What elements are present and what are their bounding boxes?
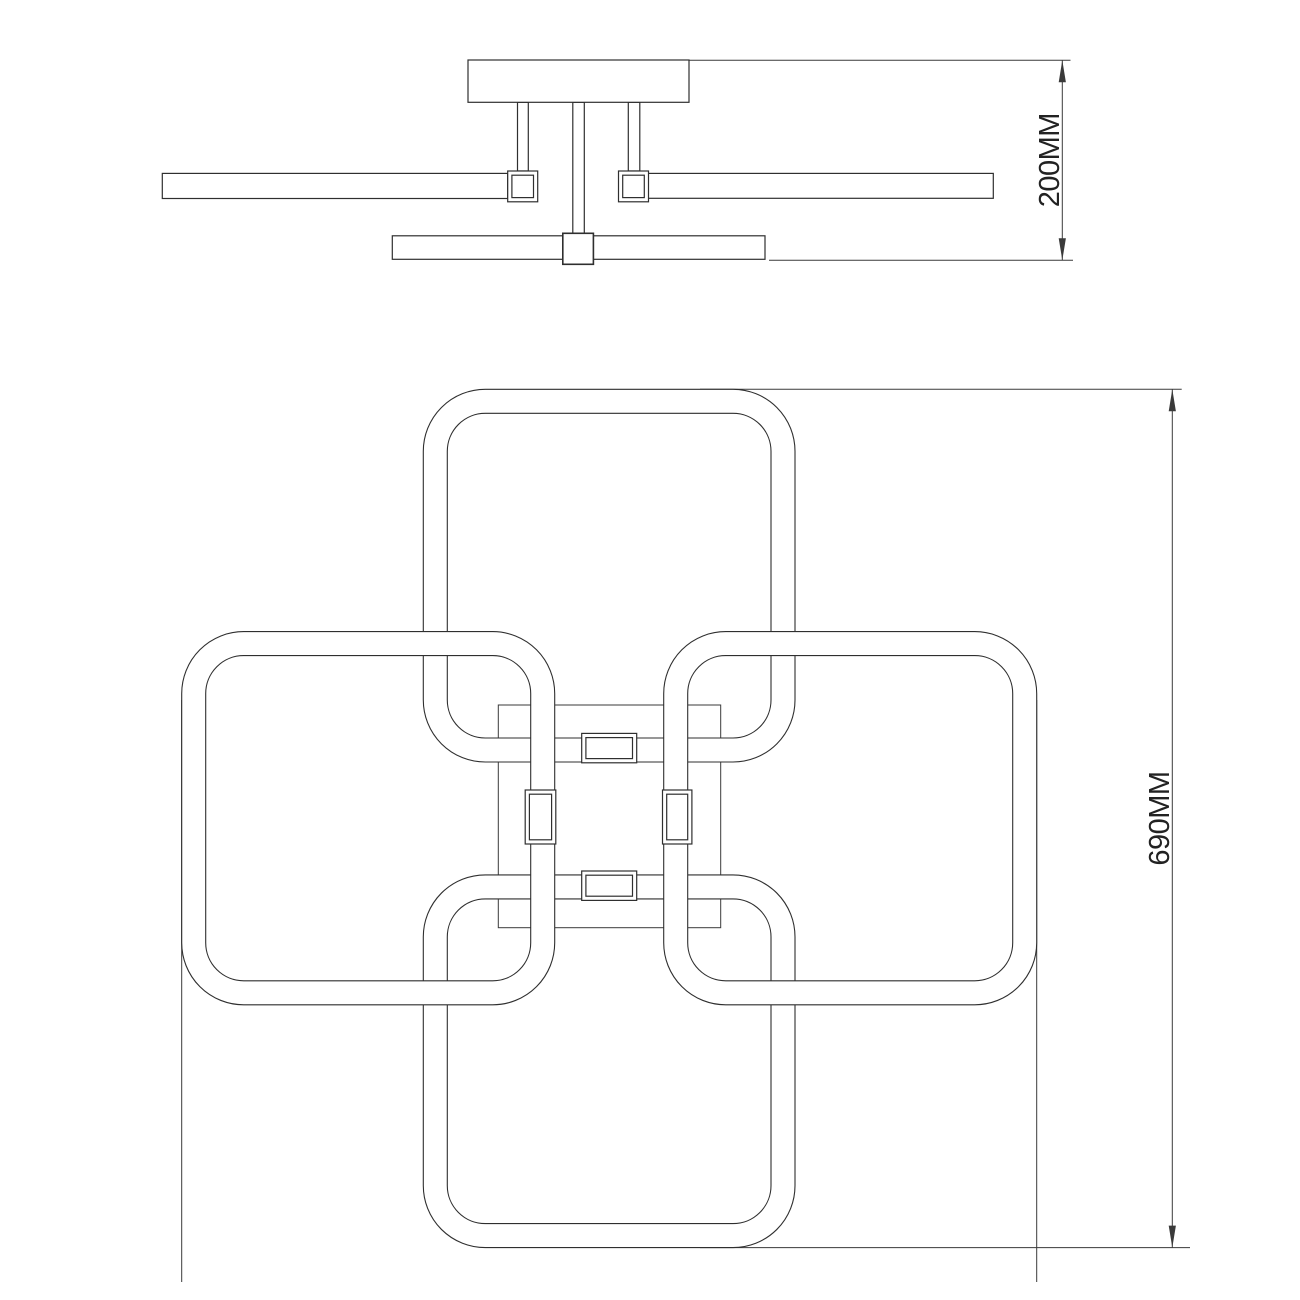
top-ring-led-square [423,389,795,762]
dimension-arrow-up [1059,60,1066,82]
side-view-elevation [162,60,1073,264]
ceiling-canopy [468,60,689,102]
plan-dimension-label: 690MM [1144,771,1176,865]
right-rod [628,102,640,171]
right-arm-bar [648,173,993,198]
dimension-arrow-down [1059,238,1066,260]
technical-drawing-page: 200MM 690MM [0,0,1300,1300]
bottom-ring-led-square [423,875,795,1248]
plan-view-bottom [182,389,1190,1282]
side-dimension-label: 200MM [1034,113,1066,207]
dimension-arrow-up [1169,389,1176,411]
left-rod [518,102,529,171]
center-rod [573,102,585,233]
technical-drawing-canvas: 200MM 690MM [0,0,1300,1300]
center-connector [563,233,594,264]
left-arm-bar [162,173,507,198]
dimension-arrow-down [1169,1226,1176,1248]
right-ring-led-square [664,632,1037,1005]
